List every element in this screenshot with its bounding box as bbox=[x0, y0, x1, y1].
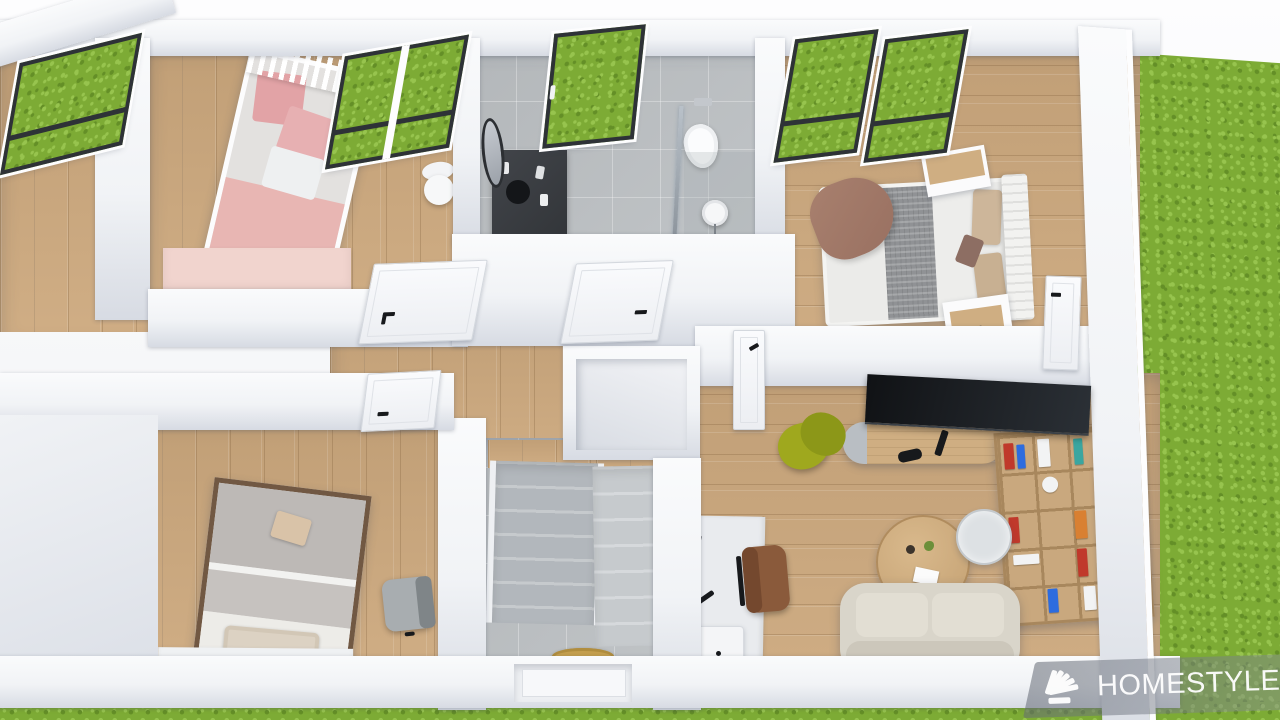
vanity-bottle-3 bbox=[540, 194, 548, 206]
cup bbox=[906, 545, 915, 554]
stairwell-shaft-interior bbox=[576, 359, 687, 450]
entry-door-panel bbox=[522, 669, 626, 697]
book bbox=[1073, 438, 1084, 465]
window-crossbar bbox=[872, 111, 952, 126]
bed-pillow-beige-1 bbox=[971, 189, 1002, 245]
book bbox=[1074, 510, 1088, 539]
vanity-sink bbox=[506, 180, 530, 204]
book-stack bbox=[1013, 554, 1040, 566]
book bbox=[1037, 439, 1051, 468]
vanity-bottle-2 bbox=[535, 165, 545, 179]
office-chair bbox=[375, 571, 442, 645]
floorplan-render-viewport[interactable]: HOMESTYLER bbox=[0, 0, 1280, 720]
window-handle bbox=[549, 85, 555, 100]
sofa-cushion-left bbox=[856, 593, 928, 637]
homestyler-fan-icon bbox=[1043, 668, 1088, 707]
window-mullion bbox=[382, 45, 410, 160]
stairwell-shaft bbox=[563, 346, 700, 460]
watermark-brand-text: HOMESTYLER bbox=[1097, 663, 1280, 702]
door-handle bbox=[749, 343, 760, 351]
stairs-upper-flight bbox=[486, 461, 604, 626]
watermark: HOMESTYLER bbox=[1030, 658, 1280, 714]
bean-bag bbox=[778, 413, 848, 471]
nightstand-wood-top bbox=[925, 149, 985, 184]
side-table bbox=[956, 509, 1012, 565]
book bbox=[1083, 586, 1097, 611]
book bbox=[1016, 444, 1026, 468]
door-living-room bbox=[733, 330, 765, 430]
chair-seat bbox=[424, 175, 454, 205]
door-handle bbox=[634, 310, 647, 314]
book bbox=[1077, 548, 1089, 577]
book bbox=[1003, 443, 1015, 470]
leather-desk-chair bbox=[731, 536, 798, 623]
door-handle bbox=[377, 412, 388, 417]
door-master-bedroom bbox=[1042, 275, 1081, 370]
toilet-flush-plate bbox=[694, 98, 712, 106]
sofa-cushion-right bbox=[932, 593, 1004, 637]
door-kids-bedroom bbox=[360, 370, 441, 432]
window-crossbar bbox=[8, 107, 127, 142]
entry-door-recess bbox=[514, 664, 632, 702]
door-nursery bbox=[358, 260, 488, 345]
door-handle bbox=[1051, 293, 1061, 297]
garden-window-bathroom bbox=[542, 24, 646, 149]
door-bathroom bbox=[560, 260, 674, 344]
window-crossbar bbox=[782, 111, 862, 126]
pink-daybed bbox=[163, 248, 351, 294]
book bbox=[1047, 588, 1059, 613]
plate bbox=[1042, 476, 1059, 493]
door-handle-stem bbox=[381, 314, 387, 324]
shell-chair bbox=[418, 162, 458, 208]
light-disc bbox=[702, 200, 728, 226]
plant-sprig bbox=[924, 541, 934, 551]
office-chair-base bbox=[405, 631, 415, 636]
